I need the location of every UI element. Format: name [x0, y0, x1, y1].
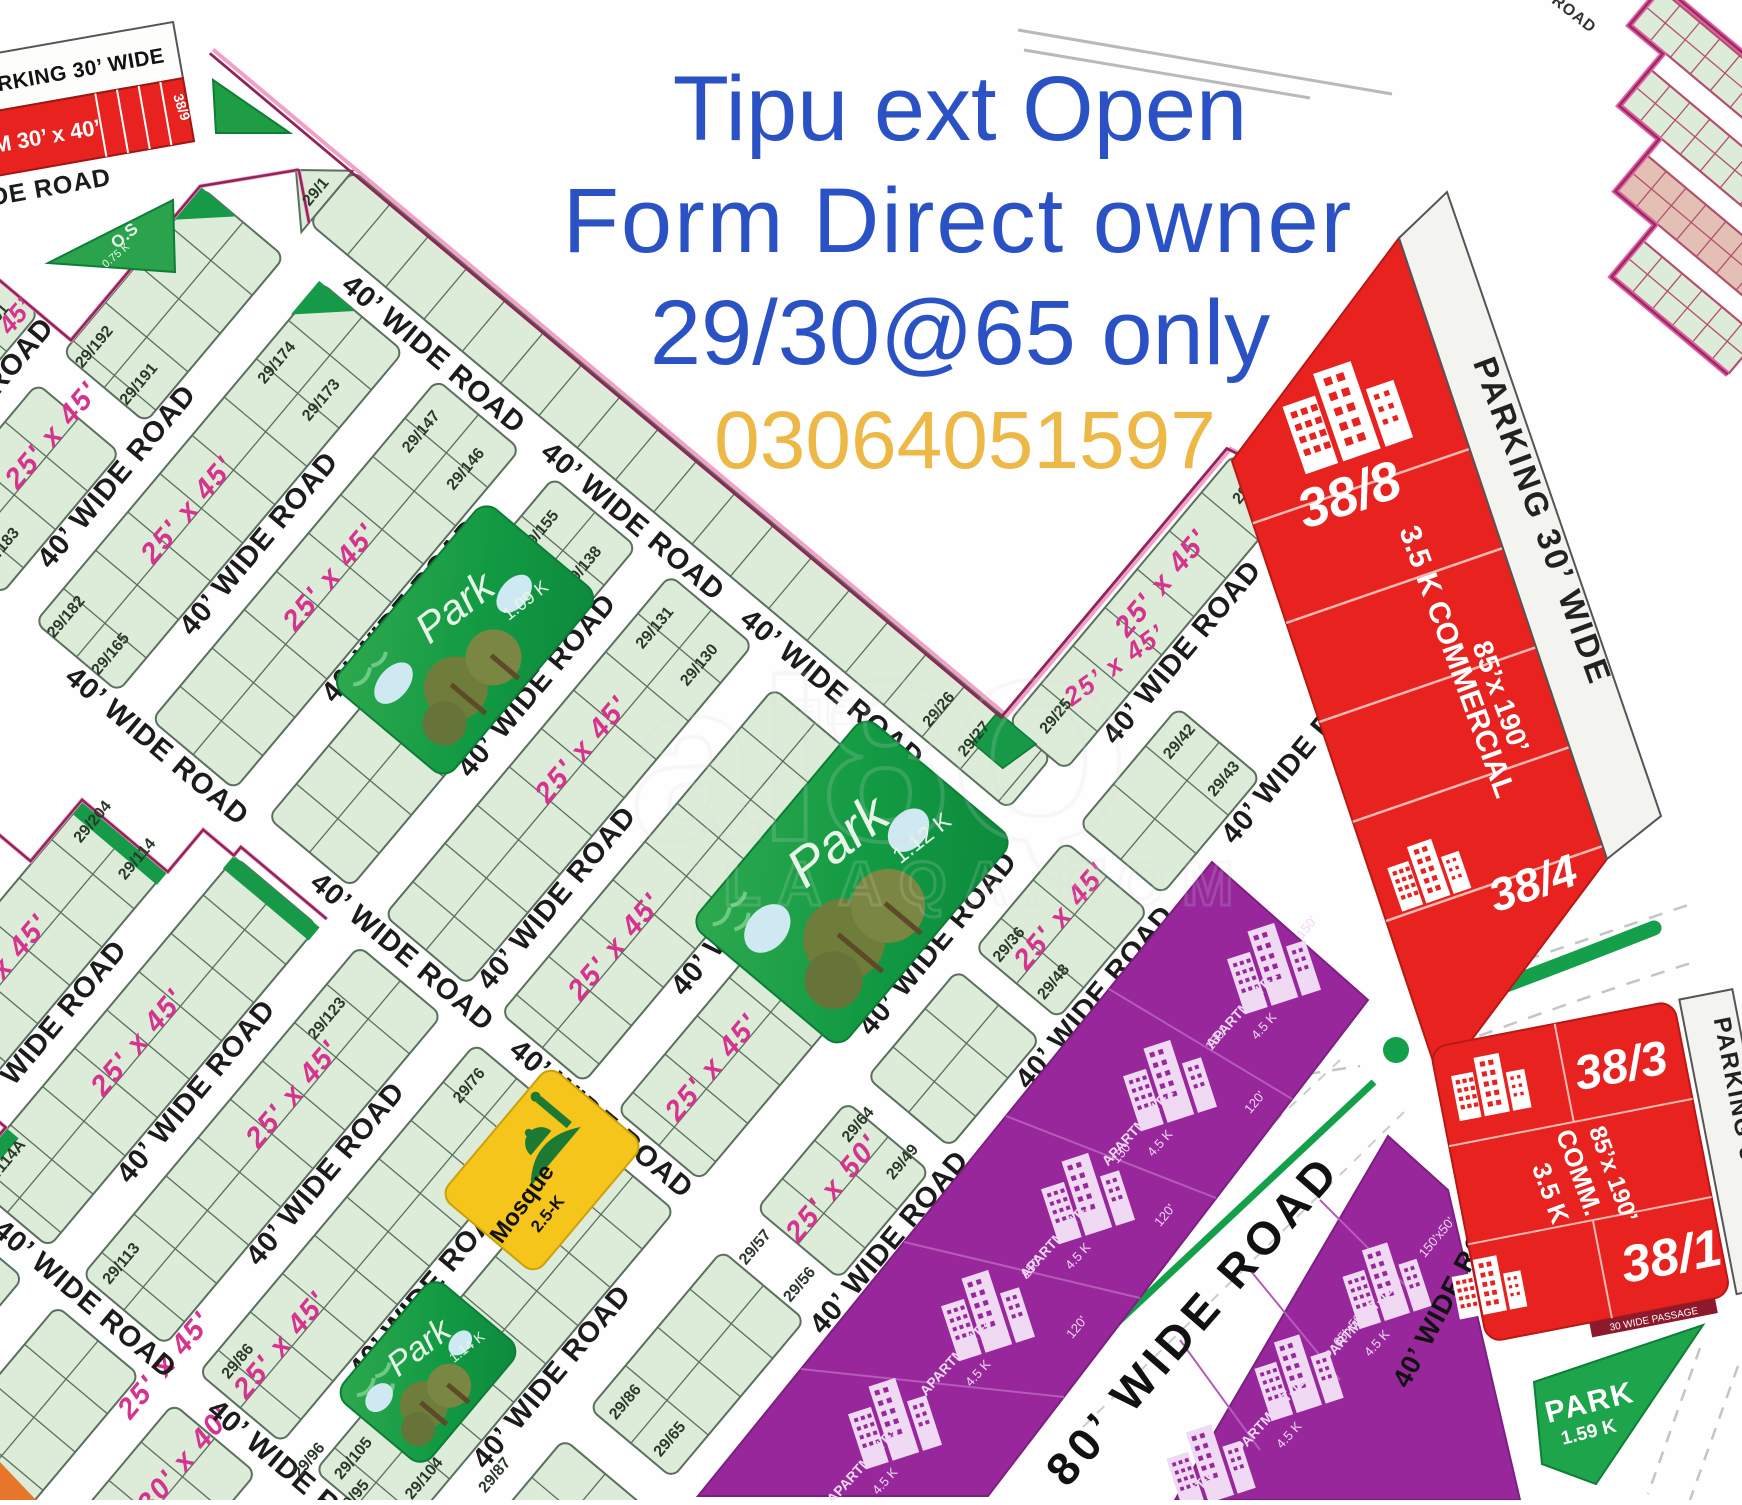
svg-text:03064051597: 03064051597	[714, 395, 1216, 486]
svg-text:ILAAQA.COM: ILAAQA.COM	[690, 850, 1250, 919]
svg-text:Form Direct owner: Form Direct owner	[563, 170, 1354, 272]
svg-text:Tipu ext Open: Tipu ext Open	[673, 58, 1247, 160]
svg-text:29/30@65 only: 29/30@65 only	[650, 282, 1270, 384]
